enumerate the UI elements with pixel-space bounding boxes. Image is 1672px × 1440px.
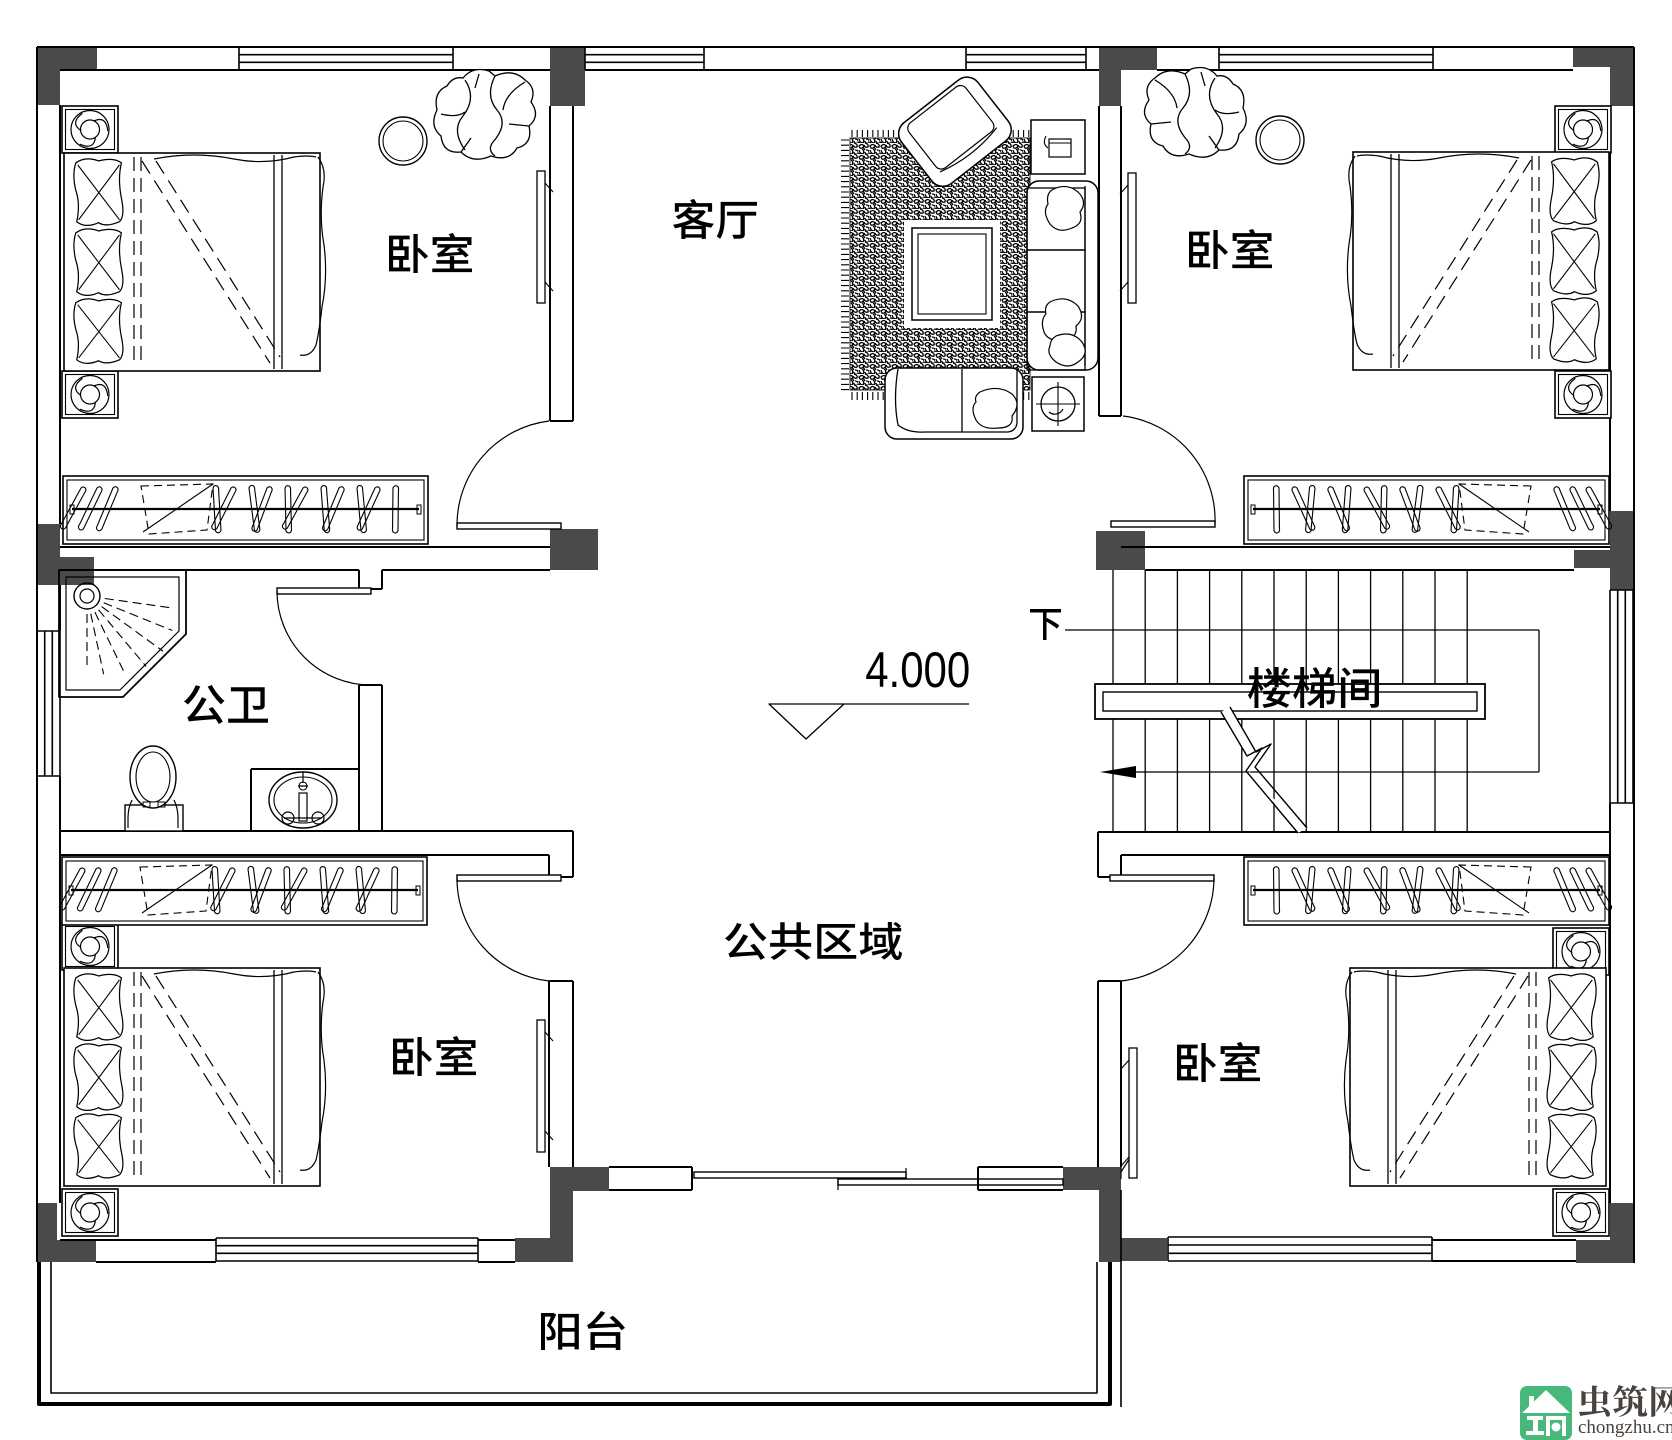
svg-text:chongzhu.cn: chongzhu.cn [1578, 1417, 1672, 1438]
svg-text:4.000: 4.000 [865, 642, 970, 698]
